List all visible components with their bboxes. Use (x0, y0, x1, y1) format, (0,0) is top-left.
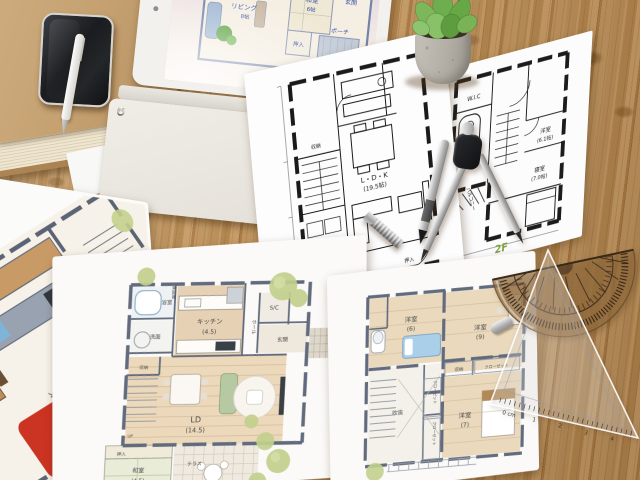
keyboard-key: M (118, 107, 124, 115)
ruler-label-3: 3 (584, 430, 589, 437)
ruler-label-2: 2 (558, 423, 563, 430)
f1-label-up: UP (127, 433, 133, 438)
floorplan-sheet-1f-color: 浴室 洗面 収納 UP 食品庫 キッチン (4.5) S/C 玄関 ホール LD… (52, 235, 366, 480)
f2-label-closet-b: クローゼット (433, 380, 439, 405)
f2-label-room-a-size: (6) (407, 325, 416, 333)
f2-label-closet-c: クローゼット (432, 421, 438, 446)
tablet-camera-icon (153, 6, 158, 11)
desk-scene: ダイニング 6帖 リビング 8帖 和室 6帖 押入 玄関 ポーチ (0, 0, 640, 480)
f1-label-bath: 浴室 (161, 298, 173, 306)
ruler-label-1: 1 (532, 417, 537, 424)
f1-label-hall: ホール (250, 319, 257, 334)
f1-label-sc: S/C (269, 305, 279, 311)
f1-label-kitchen: キッチン (197, 317, 223, 325)
f1-label-ld: LD (190, 415, 201, 424)
succulent-plant (393, 0, 493, 96)
ruler-label-4: 4 (610, 436, 615, 443)
f1-label-ld-size: (14.5) (185, 426, 205, 434)
compass-leg (476, 152, 521, 234)
compass-hinge (452, 132, 484, 170)
succulent-leaves (393, 0, 493, 54)
triangle-ruler: 0 cm 1 2 3 4 (462, 238, 640, 450)
f1-label-kitchen-size: (4.5) (202, 329, 217, 336)
f1-label-genkan: 玄関 (277, 335, 289, 343)
f1-label-wash: 洗面 (150, 333, 162, 341)
f2-label-room-a: 洋室 (405, 314, 419, 324)
f1-label-terrace: テラス (187, 461, 202, 467)
compass-knob (462, 122, 474, 135)
f1-label-washitsu: 和室 (132, 466, 144, 474)
ruler-label-0: 0 cm (502, 410, 517, 419)
